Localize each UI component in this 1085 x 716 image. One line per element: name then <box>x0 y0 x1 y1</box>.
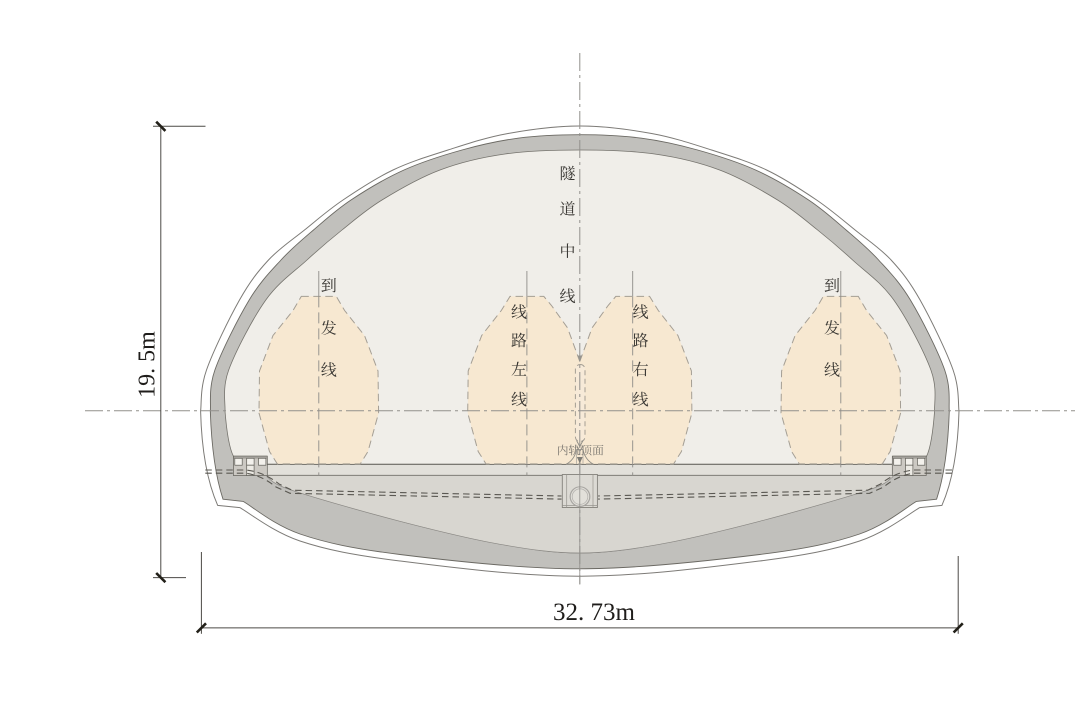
svg-text:19. 5m: 19. 5m <box>135 331 161 398</box>
svg-text:32. 73m: 32. 73m <box>553 599 636 626</box>
